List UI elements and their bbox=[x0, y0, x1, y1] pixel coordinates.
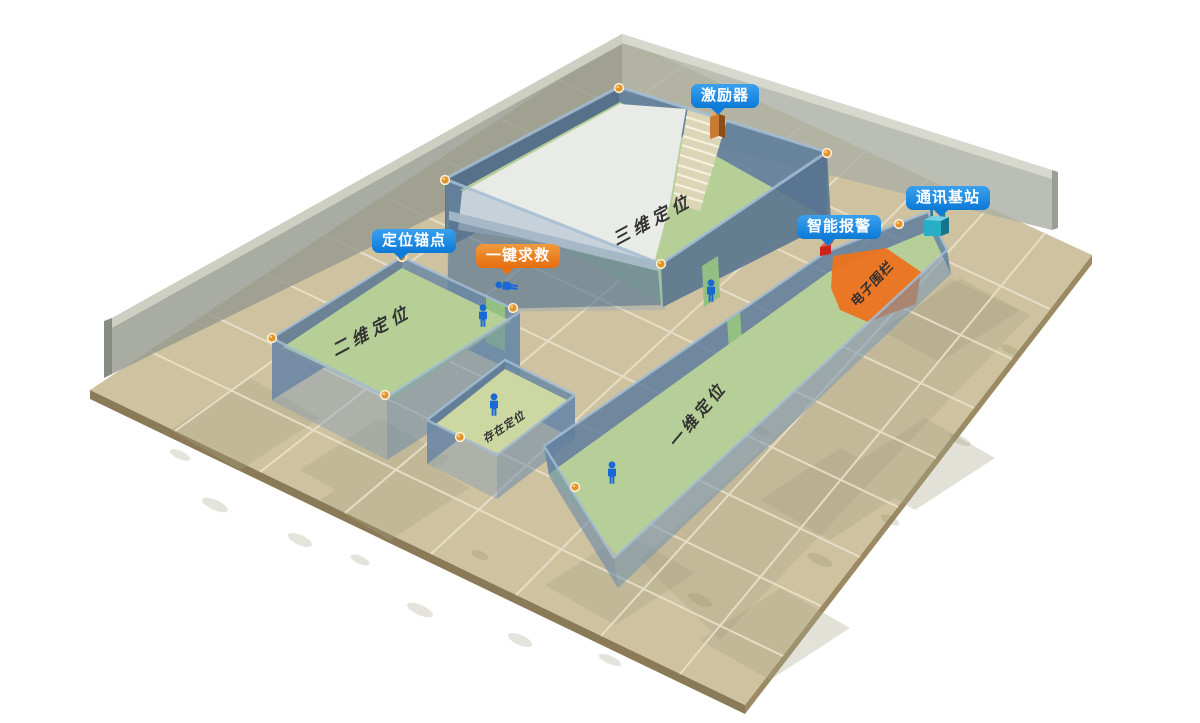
anchor-dot-icon bbox=[441, 176, 450, 185]
anchor-dot-icon bbox=[657, 260, 666, 269]
anchor-dot-icon bbox=[571, 483, 580, 492]
anchor-dot-icon bbox=[509, 304, 518, 313]
backdrop-wall-left-cap bbox=[104, 318, 112, 378]
anchor-point-callout[interactable]: 定位锚点 bbox=[372, 229, 456, 253]
anchor-dot-icon bbox=[456, 433, 465, 442]
anchor-dot-icon bbox=[615, 84, 624, 93]
smart-alarm-callout[interactable]: 智能报警 bbox=[797, 215, 881, 239]
base-station-callout[interactable]: 通讯基站 bbox=[906, 186, 990, 210]
backdrop-wall-right-cap bbox=[1052, 170, 1058, 230]
anchor-dot-icon bbox=[381, 391, 390, 400]
sos-callout[interactable]: 一键求救 bbox=[476, 244, 560, 268]
positioning-demo-scene: 三维定位 二维定位 存在定位 bbox=[0, 0, 1200, 723]
isometric-diagram: 三维定位 二维定位 存在定位 bbox=[0, 0, 1200, 723]
anchor-dot-icon bbox=[268, 334, 277, 343]
anchor-dot-icon bbox=[895, 220, 904, 229]
exciter-device-icon bbox=[710, 112, 725, 139]
exciter-callout[interactable]: 激励器 bbox=[691, 84, 759, 108]
anchor-dot-icon bbox=[823, 149, 832, 158]
